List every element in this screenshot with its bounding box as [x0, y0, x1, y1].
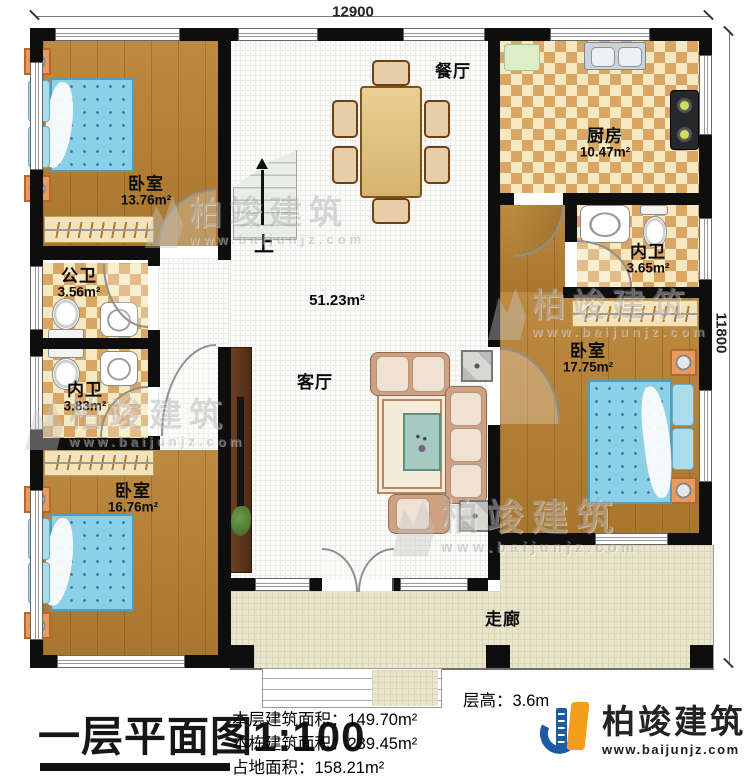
logo-building-orange [566, 702, 589, 750]
window [55, 28, 180, 41]
window [57, 655, 185, 668]
floor-height-text: 层高：3.6m [463, 687, 549, 711]
wall-segment [148, 330, 160, 387]
window [699, 390, 712, 482]
wall-segment [218, 40, 231, 260]
window [238, 28, 318, 41]
room-name: 公卫 [58, 268, 101, 286]
kitchen-sink-icon [584, 42, 646, 70]
chair-icon [372, 198, 410, 224]
sofa-cushion [450, 464, 482, 498]
room-label-bath-right: 内卫 3.65m² [627, 244, 670, 277]
plan-title-text: 一层平面图 [38, 713, 253, 760]
stairs-direction-line [261, 170, 264, 225]
sofa-cushion [450, 392, 482, 426]
stairs-up-label: 上 [254, 235, 274, 257]
sofa-cushion [396, 498, 430, 530]
building-area-text: 本栋建筑面积：239.45m² [232, 733, 417, 757]
room-label-bath-public: 公卫 3.56m² [58, 268, 101, 301]
room-name: 厨房 [580, 128, 630, 146]
chair-icon [372, 60, 410, 86]
footprint-area-text: 占地面积：158.21m² [232, 757, 417, 780]
pillow-icon [672, 384, 694, 426]
room-label-bedroom-bottom-left: 卧室 16.76m² [108, 483, 158, 516]
wall-segment [30, 438, 160, 450]
brand-website: www.baijunjz.com [602, 742, 746, 757]
wall-segment [565, 205, 577, 242]
room-label-bedroom-top-left: 卧室 13.76m² [121, 176, 171, 209]
room-label-dining: 餐厅 [435, 63, 471, 81]
title-underline [40, 763, 230, 771]
stairs-arrow-icon [256, 158, 268, 169]
room-label-bath-left: 内卫 3.83m² [64, 382, 107, 415]
wardrobe-icon [44, 216, 154, 243]
wall-segment [30, 246, 158, 260]
wall-segment [468, 578, 488, 591]
wall-segment [488, 533, 595, 545]
window [30, 356, 43, 430]
room-area: 17.75m² [563, 361, 613, 376]
chair-icon [332, 146, 358, 184]
window [30, 490, 43, 640]
sink-icon [580, 205, 630, 243]
room-area: 16.76m² [108, 501, 158, 516]
chair-icon [424, 100, 450, 138]
wall-segment [230, 578, 255, 591]
sofa-cushion [412, 356, 445, 392]
floor-area-text: 本层建筑面积：149.70m² [232, 709, 417, 733]
room-area: 3.65m² [627, 262, 670, 277]
toilet-icon [640, 205, 668, 215]
room-name: 卧室 [563, 343, 613, 361]
porch-floor-upper [500, 545, 714, 593]
room-area: 3.56m² [58, 286, 101, 301]
wall-segment [148, 246, 160, 266]
side-table-icon [461, 350, 493, 382]
counter-board-icon [504, 44, 540, 71]
room-name: 卧室 [121, 176, 171, 194]
side-table-icon [459, 500, 491, 532]
sofa-cushion [376, 356, 409, 392]
window [30, 266, 43, 330]
window [550, 28, 650, 41]
brand-logo: 柏竣建筑 www.baijunjz.com [540, 700, 746, 762]
window [699, 55, 712, 135]
room-label-bedroom-right: 卧室 17.75m² [563, 343, 613, 376]
dimension-tick [703, 10, 714, 21]
area-statistics: 本层建筑面积：149.70m² 本栋建筑面积：239.45m² 占地面积：158… [232, 709, 417, 780]
room-area: 10.47m² [580, 146, 630, 161]
room-area: 3.83m² [64, 400, 107, 415]
room-label-corridor: 走廊 [485, 611, 521, 629]
dimension-value-height: 11800 [713, 313, 730, 354]
window [403, 28, 485, 41]
chair-icon [424, 146, 450, 184]
window [595, 533, 668, 545]
wall-segment [488, 193, 514, 205]
wardrobe-icon [572, 300, 698, 327]
dimension-value-width: 12900 [332, 4, 374, 21]
wardrobe-icon [44, 450, 154, 476]
wall-segment [30, 338, 148, 349]
porch-pillar [486, 645, 510, 668]
stove-icon [670, 90, 699, 150]
wall-segment [563, 193, 699, 205]
sofa-cushion [450, 428, 482, 462]
toilet-icon [52, 298, 80, 330]
dining-table-icon [360, 86, 422, 198]
coffee-table-icon [403, 413, 441, 471]
pillow-icon [672, 428, 694, 470]
window [255, 578, 310, 591]
porch-pillar [230, 645, 254, 668]
chair-icon [332, 100, 358, 138]
window [699, 218, 712, 280]
porch-floor [230, 591, 714, 670]
nightstand-icon [670, 477, 697, 504]
brand-logo-icon [540, 700, 594, 762]
window [400, 578, 468, 591]
entrance-mat [372, 670, 438, 706]
logo-building-blue [556, 708, 567, 748]
room-name: 内卫 [627, 244, 670, 262]
room-name: 内卫 [64, 382, 107, 400]
room-name: 卧室 [108, 483, 158, 501]
wall-segment [563, 287, 699, 298]
living-area-value: 51.23m² [309, 293, 365, 309]
brand-name: 柏竣建筑 [602, 705, 746, 738]
window [30, 62, 43, 170]
room-area: 13.76m² [121, 194, 171, 209]
wall-segment [668, 533, 699, 545]
room-label-kitchen: 厨房 10.47m² [580, 128, 630, 161]
wall-segment [488, 425, 500, 580]
nightstand-icon [670, 349, 697, 376]
wall-segment [310, 578, 322, 591]
floor-plan-page: 卧室 13.76m² 餐厅 厨房 10.47m² 内卫 3.65m² 卧室 17… [0, 0, 750, 780]
dimension-tick [29, 10, 40, 21]
wall-segment [218, 347, 231, 668]
room-label-living: 客厅 [297, 374, 333, 392]
porch-pillar [690, 645, 713, 668]
